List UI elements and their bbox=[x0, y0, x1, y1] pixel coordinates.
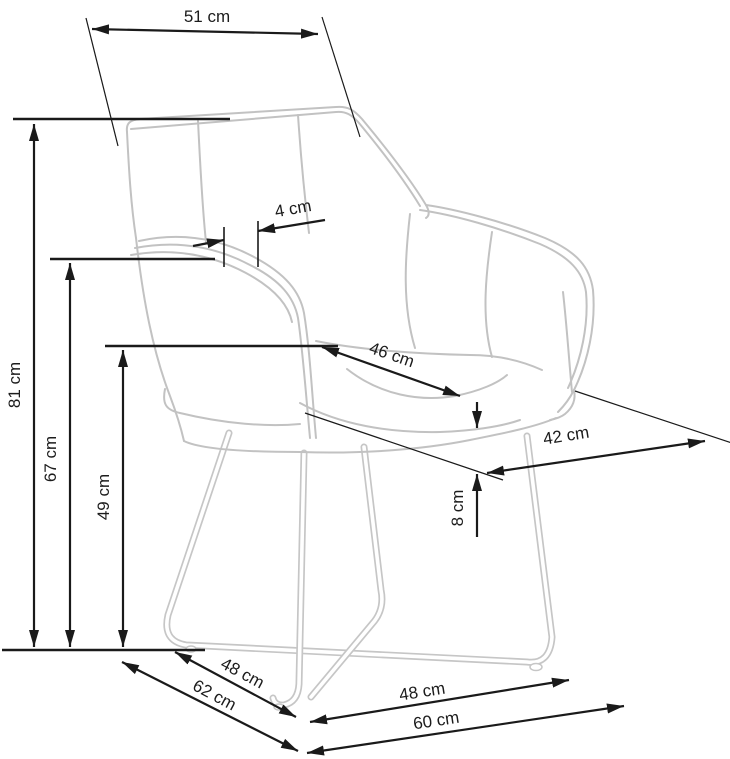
diagram-canvas: 51 cm 81 cm 67 cm 49 cm 4 cm bbox=[0, 0, 730, 759]
dim-label-49cm: 49 cm bbox=[94, 474, 113, 520]
seat bbox=[164, 341, 556, 453]
dimension-67cm: 67 cm bbox=[41, 259, 215, 647]
dim-label-51cm: 51 cm bbox=[184, 7, 230, 26]
backrest bbox=[127, 107, 429, 242]
dimension-annotations: 51 cm 81 cm 67 cm 49 cm 4 cm bbox=[2, 7, 730, 753]
chair-dimension-diagram: 51 cm 81 cm 67 cm 49 cm 4 cm bbox=[0, 0, 730, 759]
dimension-81cm: 81 cm bbox=[5, 119, 230, 647]
dim-label-48cm-side: 48 cm bbox=[218, 654, 268, 693]
dim-label-67cm: 67 cm bbox=[41, 436, 60, 482]
dimension-4cm: 4 cm bbox=[193, 196, 325, 267]
foot-glide bbox=[530, 664, 542, 671]
dim-label-81cm: 81 cm bbox=[5, 362, 24, 408]
dimension-46cm: 46 cm bbox=[322, 338, 460, 396]
dim-label-60cm: 60 cm bbox=[412, 708, 461, 734]
dim-label-42cm: 42 cm bbox=[542, 423, 591, 449]
chair-line-art bbox=[127, 107, 594, 710]
dimension-60cm: 60 cm bbox=[307, 706, 624, 753]
dimension-62cm: 62 cm bbox=[122, 662, 298, 751]
dim-label-8cm: 8 cm bbox=[448, 490, 467, 527]
left-armrest bbox=[131, 237, 316, 441]
